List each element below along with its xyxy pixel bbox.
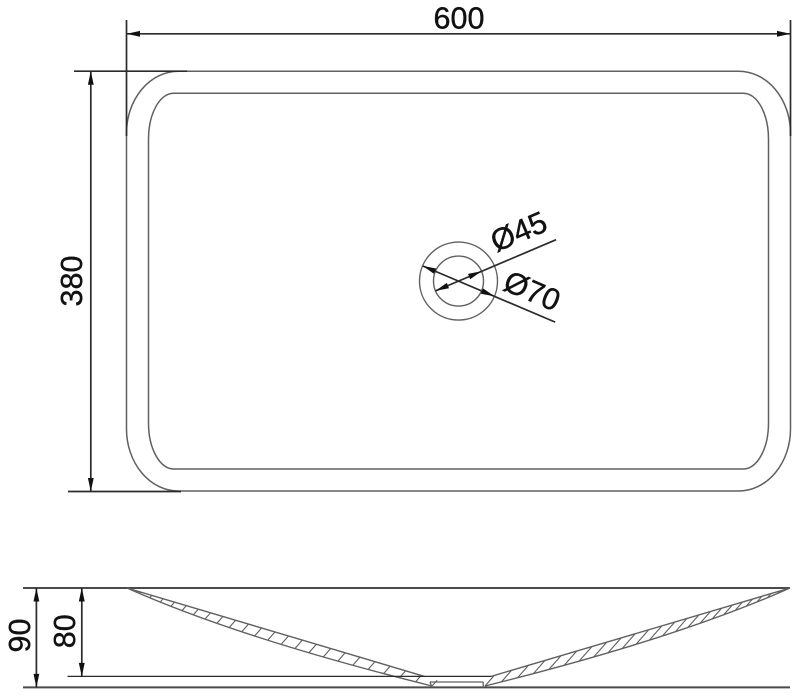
- svg-text:380: 380: [55, 256, 89, 307]
- svg-text:600: 600: [434, 2, 485, 36]
- svg-text:90: 90: [3, 619, 37, 653]
- svg-text:80: 80: [48, 614, 82, 648]
